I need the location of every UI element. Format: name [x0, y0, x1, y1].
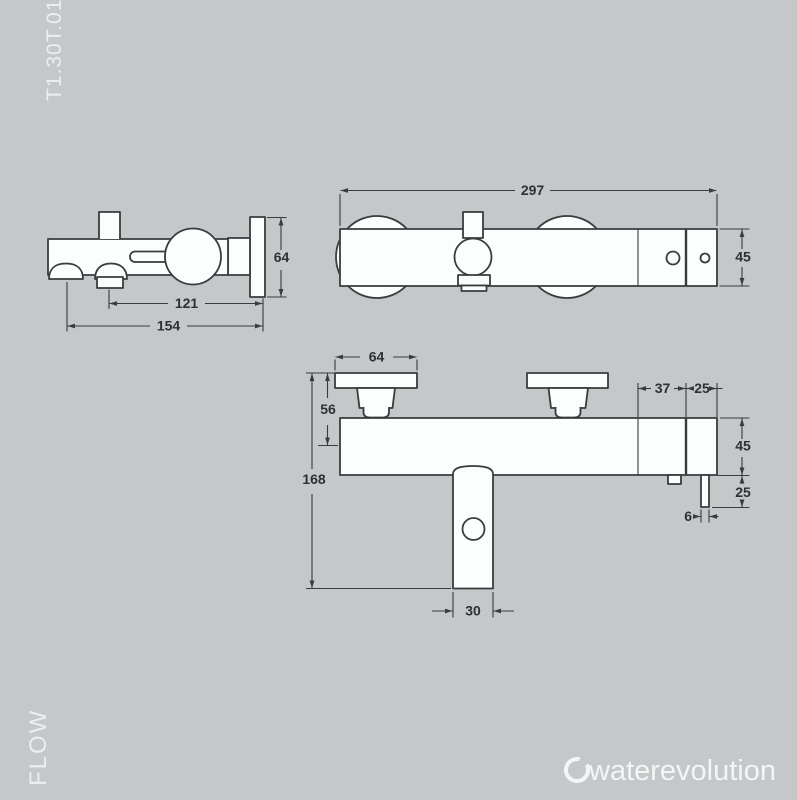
side-diverter-knob [99, 212, 120, 239]
front-left-mount-stub [364, 407, 390, 418]
front-dim-64: 64 [335, 349, 417, 371]
waterevolution-logo-icon [566, 757, 588, 781]
side-dim-121-label: 121 [175, 295, 199, 311]
product-code-label: T1.30T.01 [43, 0, 66, 101]
front-dim-6-label: 6 [684, 508, 692, 524]
front-dim-168-label: 168 [302, 471, 326, 487]
front-outlet-pipe [701, 475, 709, 507]
side-wall-connector [228, 238, 250, 275]
front-underside-stub [668, 475, 681, 484]
side-view: 64 121 154 [48, 212, 289, 334]
front-dim-37-label: 37 [655, 380, 671, 396]
side-dim-121: 121 [109, 290, 263, 332]
top-handle-bracket [458, 275, 490, 286]
front-dim-30-label: 30 [465, 603, 481, 619]
side-dim-154: 154 [67, 282, 263, 334]
front-dim-30: 30 [432, 592, 514, 619]
top-dim-297: 297 [340, 182, 717, 226]
brand-logo: waterevolution [566, 755, 776, 787]
front-left-escutcheon [335, 373, 417, 388]
top-diverter-knob [463, 212, 483, 238]
front-dim-64-label: 64 [369, 349, 385, 365]
top-dim-45-label: 45 [735, 249, 751, 265]
front-dim-37-25: 37 25 [638, 380, 723, 417]
front-dim-25-label: 25 [694, 380, 710, 396]
front-left-mount-cone [357, 388, 395, 408]
side-dim-64: 64 [267, 218, 289, 298]
top-handle [455, 239, 492, 276]
top-handle-stub [462, 286, 487, 292]
top-body [340, 229, 717, 286]
side-handshower-outlet-dome [49, 264, 83, 280]
front-right-mount-stub [556, 407, 581, 418]
side-dim-154-label: 154 [157, 318, 181, 334]
top-view: 297 45 [336, 182, 751, 298]
front-dim-56-label: 56 [320, 401, 336, 417]
technical-drawing-sheet: 64 121 154 [0, 0, 797, 800]
top-dim-297-label: 297 [521, 182, 545, 198]
front-right-mount-cone [549, 388, 589, 408]
top-dim-45: 45 [720, 229, 751, 286]
front-view: 64 56 168 30 [302, 349, 751, 619]
series-name-label: FLOW [25, 709, 52, 786]
front-dim-25-lower-label: 25 [735, 484, 751, 500]
front-dim-45-label: 45 [735, 438, 751, 454]
front-dim-25-lower: 25 [712, 476, 751, 508]
front-diverter-button [463, 518, 485, 540]
top-screw-hole-small [701, 254, 710, 263]
front-body [340, 418, 717, 475]
side-dim-64-label: 64 [274, 249, 290, 265]
side-wall-plate [250, 217, 265, 297]
front-right-escutcheon [527, 373, 608, 388]
brand-logo-text: waterevolution [588, 755, 776, 787]
front-dim-6: 6 [684, 508, 718, 524]
front-dim-45: 45 [718, 418, 751, 476]
top-screw-hole-large [667, 252, 680, 265]
side-spout-outlet-stub [97, 277, 123, 288]
drawing-canvas: 64 121 154 [0, 0, 797, 800]
side-handle-ball [165, 229, 221, 285]
